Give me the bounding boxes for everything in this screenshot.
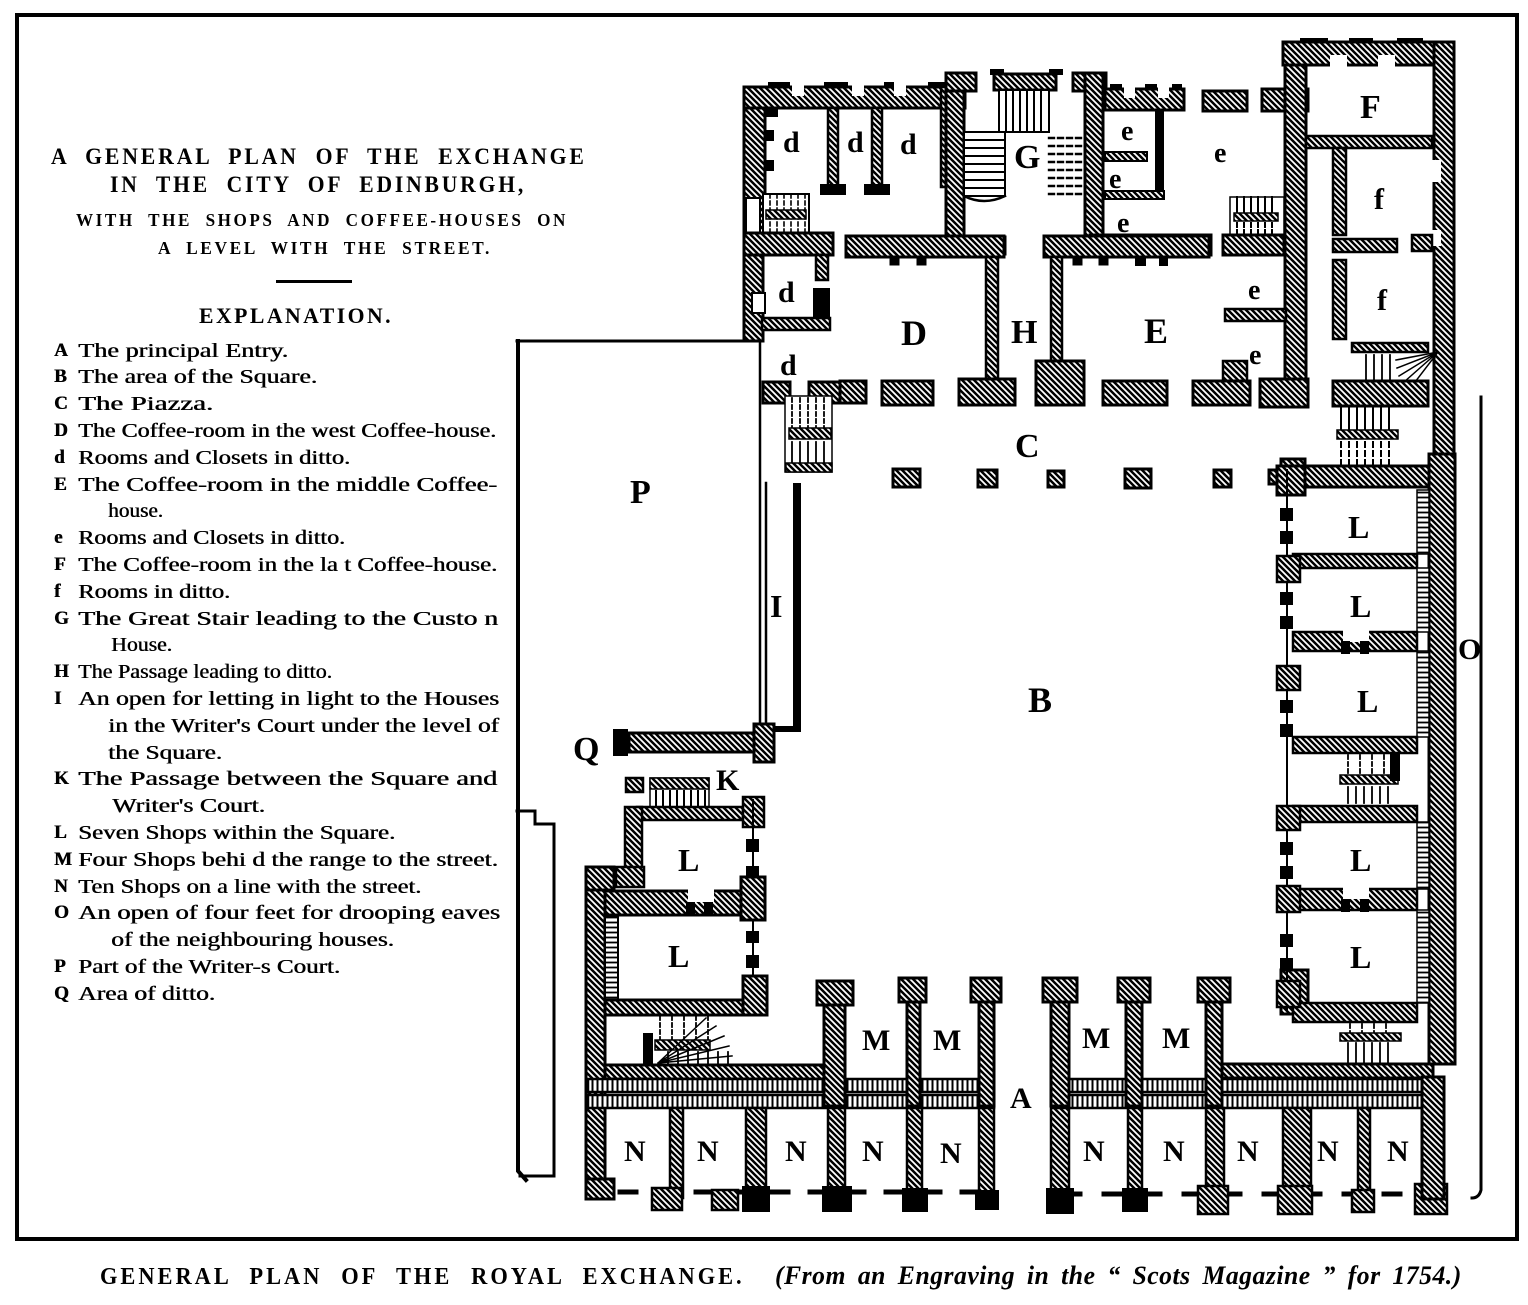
svg-text:N: N — [1163, 1135, 1185, 1168]
svg-text:L: L — [1357, 683, 1378, 719]
svg-text:f: f — [1374, 183, 1385, 216]
svg-text:M: M — [1162, 1022, 1190, 1055]
svg-text:d: d — [783, 126, 800, 159]
svg-text:N: N — [862, 1135, 884, 1168]
svg-text:N: N — [1317, 1135, 1339, 1168]
svg-text:E: E — [1144, 311, 1168, 351]
svg-text:P: P — [630, 474, 651, 511]
svg-text:G: G — [1014, 139, 1040, 176]
svg-text:F: F — [1360, 89, 1381, 126]
svg-text:I: I — [770, 588, 782, 624]
svg-text:N: N — [697, 1135, 719, 1168]
svg-text:M: M — [1082, 1022, 1110, 1055]
svg-text:L: L — [1350, 939, 1371, 975]
svg-text:d: d — [847, 126, 864, 159]
svg-text:M: M — [862, 1024, 890, 1057]
svg-text:Q: Q — [573, 731, 599, 768]
svg-text:e: e — [1248, 275, 1260, 306]
svg-text:d: d — [900, 128, 917, 161]
svg-text:L: L — [668, 938, 689, 974]
svg-text:e: e — [1214, 138, 1226, 169]
svg-text:d: d — [780, 349, 797, 382]
svg-text:L: L — [1350, 588, 1371, 624]
svg-text:B: B — [1028, 680, 1052, 720]
svg-text:L: L — [1350, 842, 1371, 878]
svg-text:O: O — [1458, 633, 1481, 666]
svg-text:N: N — [1083, 1135, 1105, 1168]
svg-text:N: N — [624, 1135, 646, 1168]
svg-text:D: D — [901, 313, 927, 353]
svg-text:C: C — [1015, 428, 1040, 465]
svg-text:N: N — [785, 1135, 807, 1168]
svg-text:L: L — [1348, 509, 1369, 545]
svg-text:N: N — [1237, 1135, 1259, 1168]
svg-text:N: N — [1387, 1135, 1409, 1168]
svg-text:e: e — [1249, 340, 1261, 371]
svg-text:A: A — [1010, 1082, 1032, 1115]
svg-text:f: f — [1377, 284, 1388, 317]
svg-text:L: L — [678, 842, 699, 878]
svg-text:H: H — [1011, 314, 1037, 351]
svg-text:K: K — [716, 764, 740, 797]
svg-text:N: N — [940, 1137, 962, 1170]
svg-text:e: e — [1121, 116, 1133, 147]
svg-text:M: M — [933, 1024, 961, 1057]
svg-text:d: d — [778, 276, 795, 309]
